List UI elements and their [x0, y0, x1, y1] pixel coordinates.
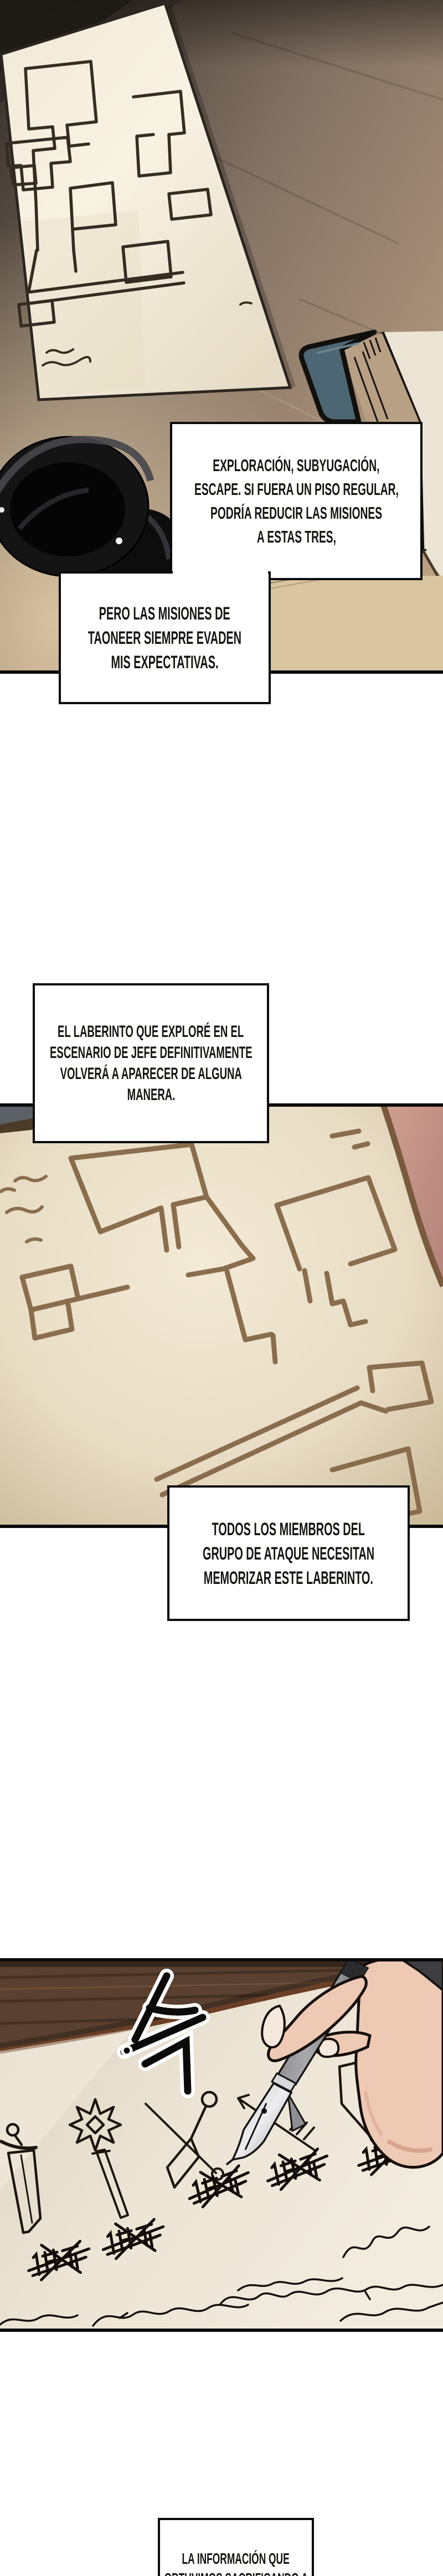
narration-line: A ESTAS TRES, — [256, 525, 336, 549]
narration-line: ESCAPE. SI FUERA UN PISO REGULAR, — [194, 477, 399, 501]
book-pages-bottom — [271, 576, 443, 674]
ink-bottle-highlight — [116, 538, 122, 544]
panel-maze-closeup — [0, 1103, 443, 1528]
comic-page: EXPLORACIÓN, SUBYUGACIÓN, ESCAPE. SI FUE… — [0, 0, 443, 2576]
narration-box-information: LA INFORMACIÓN QUE OBTUVIMOS SACRIFICAND… — [158, 2518, 314, 2576]
narration-line: ESCENARIO DE JEFE DEFINITIVAMENTE — [50, 1042, 252, 1064]
narration-line: PERO LAS MISIONES DE — [99, 601, 230, 626]
narration-line: TODOS LOS MIEMBROS DEL — [212, 1517, 365, 1541]
narration-line: MANERA. — [127, 1085, 175, 1106]
aged-map-paper — [0, 1103, 443, 1528]
narration-line: GRUPO DE ATAQUE NECESITAN — [203, 1541, 374, 1566]
narration-line: PODRÍA REDUCIR LAS MISIONES — [210, 501, 382, 525]
panel3-top-border — [0, 1958, 443, 1961]
narration-box-labyrinth: EL LABERINTO QUE EXPLORÉ EN EL ESCENARIO… — [33, 983, 269, 1143]
narration-line: LA INFORMACIÓN QUE — [182, 2549, 290, 2569]
panel-hand-writing — [0, 1958, 443, 2332]
hand-palm — [356, 1958, 443, 2167]
narration-line: MIS EXPECTATIVAS. — [111, 650, 218, 674]
narration-box-missions: EXPLORACIÓN, SUBYUGACIÓN, ESCAPE. SI FUE… — [170, 422, 423, 580]
narration-box-expectations: PERO LAS MISIONES DE TAONEER SIEMPRE EVA… — [59, 571, 271, 704]
narration-line: TAONEER SIEMPRE EVADEN — [88, 626, 241, 650]
narration-line: EL LABERINTO QUE EXPLORÉ EN EL — [58, 1021, 244, 1042]
panel3-bottom-border — [0, 2329, 443, 2332]
narration-line: OBTUVIMOS SACRIFICANDO A — [164, 2569, 308, 2576]
narration-box-memorize: TODOS LOS MIEMBROS DEL GRUPO DE ATAQUE N… — [167, 1485, 410, 1621]
narration-line: EXPLORACIÓN, SUBYUGACIÓN, — [213, 453, 379, 477]
narration-box-join — [173, 571, 268, 582]
narration-line: VOLVERÁ A APARECER DE ALGUNA — [60, 1064, 241, 1085]
narration-line: MEMORIZAR ESTE LABERINTO. — [204, 1566, 373, 1590]
